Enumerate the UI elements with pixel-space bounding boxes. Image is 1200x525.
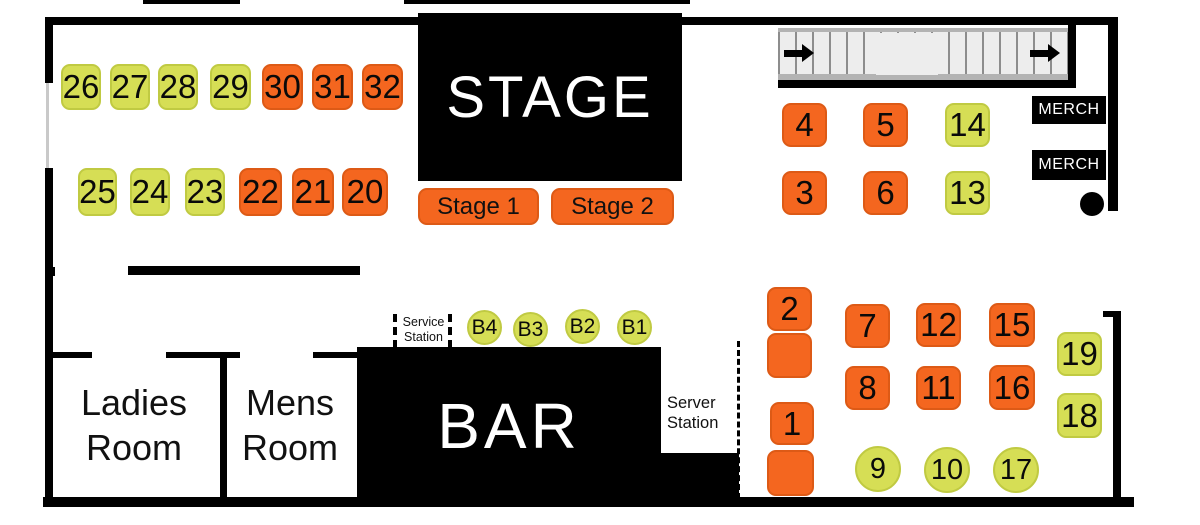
wall-interior-rail — [128, 266, 360, 275]
table-blank[interactable] — [767, 333, 812, 378]
door-opening-line — [46, 83, 49, 168]
bar-extension — [661, 453, 739, 503]
wall-left-tick — [45, 267, 55, 276]
restroom-wall-c — [313, 352, 358, 358]
server-station-label: Server Station — [667, 393, 731, 433]
ladies-room-label: Ladies Room — [48, 380, 220, 470]
table-26[interactable]: 26 — [61, 64, 101, 110]
bar-area: BAR — [357, 347, 661, 504]
table-15[interactable]: 15 — [989, 303, 1035, 347]
wall-top-sliver-left — [143, 0, 240, 4]
stage-label: STAGE — [446, 64, 653, 131]
service-station-dash-left — [393, 314, 397, 348]
table-28[interactable]: 28 — [158, 64, 198, 110]
table-9[interactable]: 9 — [855, 446, 901, 492]
stairs-direction-arrow-icon — [1030, 50, 1048, 57]
table-B3[interactable]: B3 — [513, 312, 548, 347]
service-station-label: Service Station — [399, 315, 448, 345]
table-3[interactable]: 3 — [782, 171, 827, 215]
table-B4[interactable]: B4 — [467, 310, 502, 345]
wall-top-sliver-center — [404, 0, 690, 4]
wall-left-upper — [45, 17, 53, 83]
merch-stand-upper: MERCH — [1032, 96, 1106, 124]
table-7[interactable]: 7 — [845, 304, 890, 348]
table-8[interactable]: 8 — [845, 366, 890, 410]
merch-stand-lower: MERCH — [1032, 150, 1106, 180]
table-12[interactable]: 12 — [916, 303, 961, 347]
table-1[interactable]: 1 — [770, 402, 814, 445]
table-32[interactable]: 32 — [362, 64, 403, 110]
stage-area: STAGE — [418, 13, 682, 181]
stage-2-label: Stage 2 — [551, 188, 674, 225]
bar-label: BAR — [437, 389, 581, 463]
table-24[interactable]: 24 — [130, 168, 170, 216]
table-5[interactable]: 5 — [863, 103, 908, 147]
table-18[interactable]: 18 — [1057, 393, 1102, 438]
stairs-frame-right — [1068, 23, 1076, 86]
table-21[interactable]: 21 — [292, 168, 334, 216]
stairs-direction-arrow-icon — [784, 50, 802, 57]
table-B1[interactable]: B1 — [617, 310, 652, 345]
table-27[interactable]: 27 — [110, 64, 150, 110]
table-30[interactable]: 30 — [262, 64, 303, 110]
table-13[interactable]: 13 — [945, 171, 990, 215]
table-17[interactable]: 17 — [993, 447, 1039, 493]
pillar-dot — [1080, 192, 1104, 216]
table-6[interactable]: 6 — [863, 171, 908, 215]
table-29[interactable]: 29 — [210, 64, 251, 110]
service-station-dash-right — [448, 314, 452, 348]
restroom-wall-b — [166, 352, 240, 358]
table-23[interactable]: 23 — [185, 168, 225, 216]
table-10[interactable]: 10 — [924, 447, 970, 493]
venue-floor-plan: STAGE Stage 1 Stage 2 BAR Service Statio… — [0, 0, 1200, 525]
stairs-landing — [876, 33, 938, 75]
table-19[interactable]: 19 — [1057, 332, 1102, 376]
table-31[interactable]: 31 — [312, 64, 353, 110]
server-station-dashed-boundary — [737, 341, 740, 499]
restroom-wall-a — [48, 352, 92, 358]
stage-1-label: Stage 1 — [418, 188, 539, 225]
mens-room-label: Mens Room — [222, 380, 358, 470]
table-25[interactable]: 25 — [78, 168, 117, 216]
table-20[interactable]: 20 — [342, 168, 388, 216]
wall-right-lower — [1113, 311, 1121, 503]
stairs-frame-bottom — [778, 80, 1076, 88]
wall-right-upper — [1108, 17, 1118, 211]
table-14[interactable]: 14 — [945, 103, 990, 147]
table-22[interactable]: 22 — [239, 168, 282, 216]
table-11[interactable]: 11 — [916, 366, 961, 410]
table-blank[interactable] — [767, 450, 814, 496]
table-B2[interactable]: B2 — [565, 309, 600, 344]
table-2[interactable]: 2 — [767, 287, 812, 331]
table-16[interactable]: 16 — [989, 365, 1035, 410]
table-4[interactable]: 4 — [782, 103, 827, 147]
